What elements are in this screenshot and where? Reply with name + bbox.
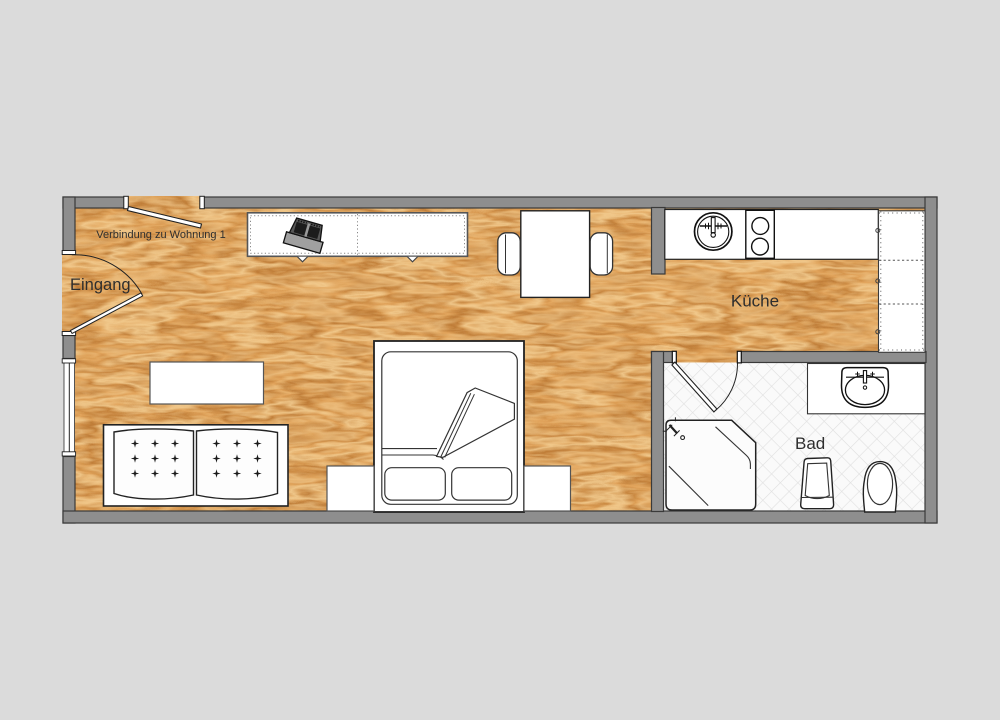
svg-text:Eingang: Eingang	[70, 276, 131, 294]
svg-text:Küche: Küche	[731, 292, 779, 311]
svg-text:Bad: Bad	[795, 434, 825, 453]
svg-text:Verbindung zu Wohnung 1: Verbindung zu Wohnung 1	[96, 229, 225, 241]
